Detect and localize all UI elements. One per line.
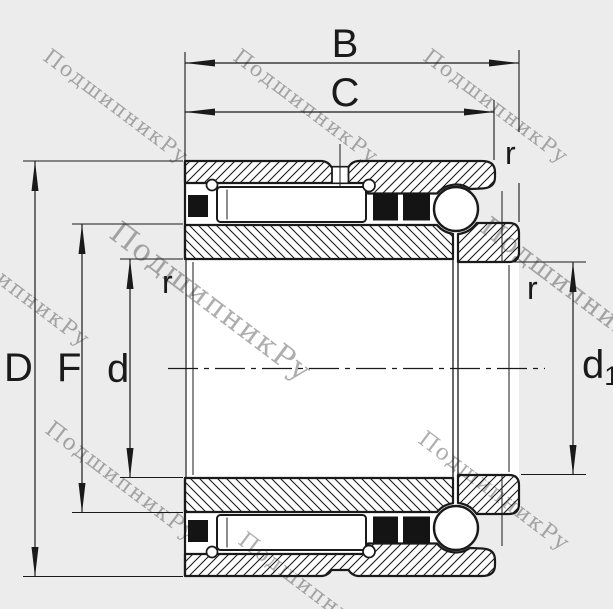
label-d1-subscript: 1 [604, 361, 613, 391]
ball-bottom [434, 506, 478, 550]
label-r-top-right: r [505, 135, 516, 171]
label-d: d [107, 347, 129, 391]
technical-drawing-page: B C D F d d1 r r r ПодшипникРу Подшипник… [0, 0, 613, 609]
label-D: D [4, 346, 33, 390]
label-F: F [57, 346, 81, 390]
needle-cage-end-top-left [188, 195, 208, 217]
bearing-cross-section-drawing: B C D F d d1 r r r ПодшипникРу Подшипник… [0, 0, 613, 609]
needle-cage-end-top-right [373, 194, 398, 221]
label-d1-base: d [582, 343, 604, 387]
label-B: B [332, 22, 359, 66]
ball-top [434, 187, 478, 231]
cage-pin-top-right [363, 180, 375, 192]
cage-pin-bottom-right [363, 546, 375, 558]
needle-cage-end-bottom-right [373, 517, 398, 544]
needle-roller-top [217, 187, 366, 222]
ball-cage-bottom [403, 517, 430, 544]
cage-pin-top-left [207, 180, 218, 191]
ball-cage-top [403, 194, 430, 221]
label-C: C [331, 71, 360, 115]
cage-pin-bottom-left [207, 547, 218, 558]
